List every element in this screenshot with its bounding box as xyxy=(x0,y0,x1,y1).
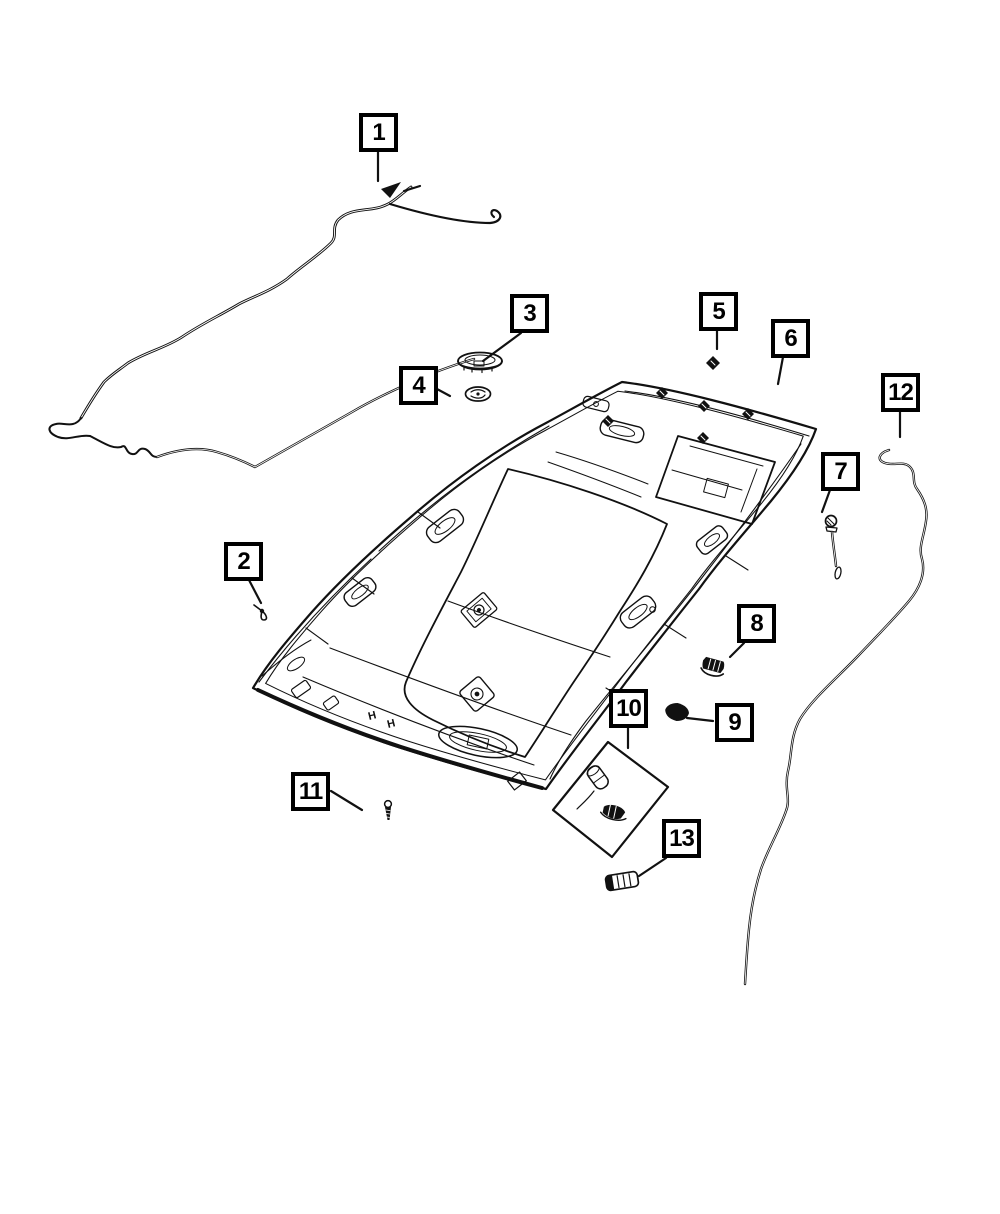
callout-box-6[interactable]: 6 xyxy=(771,319,810,358)
part-glyph-5-push-clip xyxy=(706,356,720,370)
lamp-mount-plate-front xyxy=(460,592,497,628)
callout-label-2: 2 xyxy=(237,550,249,574)
front-header-seams xyxy=(548,452,648,497)
leader-line-8 xyxy=(730,643,744,657)
callout-label-1: 1 xyxy=(372,121,384,145)
part-glyph-11-screw xyxy=(385,801,392,820)
leader-line-4 xyxy=(437,389,450,396)
callout-box-10[interactable]: 10 xyxy=(609,689,648,728)
callout-box-8[interactable]: 8 xyxy=(737,604,776,643)
callout-label-10: 10 xyxy=(616,697,641,721)
sunroof-seam xyxy=(448,601,610,657)
callout-label-3: 3 xyxy=(523,302,535,326)
leader-lines xyxy=(249,151,900,876)
part-glyph-8-hook-bracket xyxy=(700,656,726,678)
callout-label-6: 6 xyxy=(784,327,796,351)
part-glyph-7-push-pin xyxy=(826,516,842,580)
callout-label-8: 8 xyxy=(750,612,762,636)
callout-label-7: 7 xyxy=(834,460,846,484)
leader-line-11 xyxy=(331,791,362,810)
callout-box-3[interactable]: 3 xyxy=(510,294,549,333)
rear-console-oval xyxy=(436,720,520,763)
rail-ticks xyxy=(306,512,748,702)
part-glyph-13-lamp-lens xyxy=(605,871,639,891)
leader-line-7 xyxy=(822,490,830,512)
part-glyph-10-bulb-kit xyxy=(553,742,668,857)
h-mark-right: H xyxy=(386,717,397,731)
part-glyph-9-pad-clip xyxy=(664,701,691,723)
lamp-cutout-right-front xyxy=(694,524,729,556)
callout-label-13: 13 xyxy=(669,827,694,851)
h-mark-left: H xyxy=(367,709,378,723)
parts-diagram-canvas: H H xyxy=(0,0,1000,1214)
leader-line-9 xyxy=(687,718,713,721)
leader-line-2 xyxy=(249,580,261,603)
callout-label-9: 9 xyxy=(728,711,740,735)
callout-box-11[interactable]: 11 xyxy=(291,772,330,811)
callout-box-13[interactable]: 13 xyxy=(662,819,701,858)
callout-box-9[interactable]: 9 xyxy=(715,703,754,742)
callout-box-4[interactable]: 4 xyxy=(399,366,438,405)
rear-vent-slot-1 xyxy=(291,680,311,699)
rear-vent-slot-2 xyxy=(323,695,340,710)
part-glyph-12-side-wire xyxy=(745,450,927,984)
front-console-recess xyxy=(656,436,775,524)
leader-line-13 xyxy=(639,858,666,876)
callout-box-2[interactable]: 2 xyxy=(224,542,263,581)
grab-handle-cutout-left xyxy=(424,507,467,546)
grab-handle-cutout-right xyxy=(617,593,659,631)
diagram-line-art: H H xyxy=(0,0,1000,1214)
callout-label-11: 11 xyxy=(299,780,322,804)
callout-box-1[interactable]: 1 xyxy=(359,113,398,152)
rear-left-sail-slot xyxy=(285,655,307,674)
leader-line-6 xyxy=(778,357,783,384)
callout-box-7[interactable]: 7 xyxy=(821,452,860,491)
callout-box-5[interactable]: 5 xyxy=(699,292,738,331)
left-rail-line xyxy=(259,426,549,682)
part-glyph-1-antenna-cable xyxy=(49,182,500,467)
callout-label-4: 4 xyxy=(412,374,424,398)
part-glyph-4-round-retainer xyxy=(466,387,491,401)
callout-box-12[interactable]: 12 xyxy=(881,373,920,412)
leader-line-3 xyxy=(483,333,521,361)
part-glyph-2-retainer-clip xyxy=(254,605,266,620)
callout-label-5: 5 xyxy=(712,300,724,324)
lamp-cutout-left-rear xyxy=(342,575,379,609)
callout-label-12: 12 xyxy=(888,381,913,405)
